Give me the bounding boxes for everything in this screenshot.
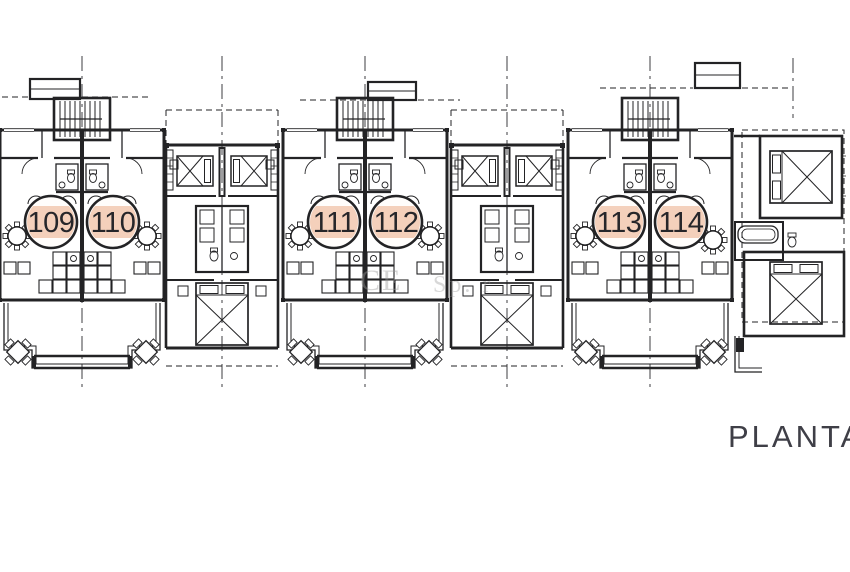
unit-number-badge-112: 112 bbox=[370, 196, 422, 248]
building-block-3 bbox=[565, 63, 740, 373]
plan-title-label: PLANTA bbox=[728, 419, 850, 454]
unit-number-badge-109: 109 bbox=[25, 196, 77, 248]
toilet-icon bbox=[788, 237, 796, 247]
unit-number-label: 114 bbox=[659, 207, 704, 239]
terrace bbox=[0, 303, 167, 373]
unit-number-label: 110 bbox=[91, 207, 136, 239]
unit-number-label: 109 bbox=[28, 207, 75, 239]
party-wall bbox=[648, 130, 652, 302]
watermark-text-left: CE bbox=[360, 264, 402, 297]
roof-box bbox=[30, 79, 80, 99]
floor-plan-drawing: 109 110 111 112 113 114 CE Sp. r PLANTA bbox=[0, 0, 850, 572]
bedroom-walls bbox=[760, 136, 842, 218]
bed-icon bbox=[770, 262, 822, 324]
unit-number-badge-110: 110 bbox=[87, 196, 139, 248]
party-wall bbox=[80, 130, 84, 302]
scanned-floor-plan-page: 109 110 111 112 113 114 CE Sp. r PLANTA bbox=[0, 0, 850, 572]
unit-number-label: 112 bbox=[374, 207, 419, 239]
bathtub-icon bbox=[738, 226, 778, 243]
right-wing bbox=[734, 130, 846, 372]
unit-number-label: 111 bbox=[313, 207, 356, 239]
wing-balcony bbox=[735, 336, 762, 372]
roof-box bbox=[695, 63, 740, 88]
unit-number-badge-111: 111 bbox=[308, 196, 360, 248]
watermark-text-right: Sp. r bbox=[433, 272, 493, 298]
unit-number-badge-114: 114 bbox=[655, 196, 707, 248]
bed-icon bbox=[770, 151, 832, 203]
unit-number-badge-113: 113 bbox=[593, 196, 645, 248]
setback-dashed-outlines bbox=[2, 88, 788, 143]
unit-number-label: 113 bbox=[597, 207, 642, 239]
